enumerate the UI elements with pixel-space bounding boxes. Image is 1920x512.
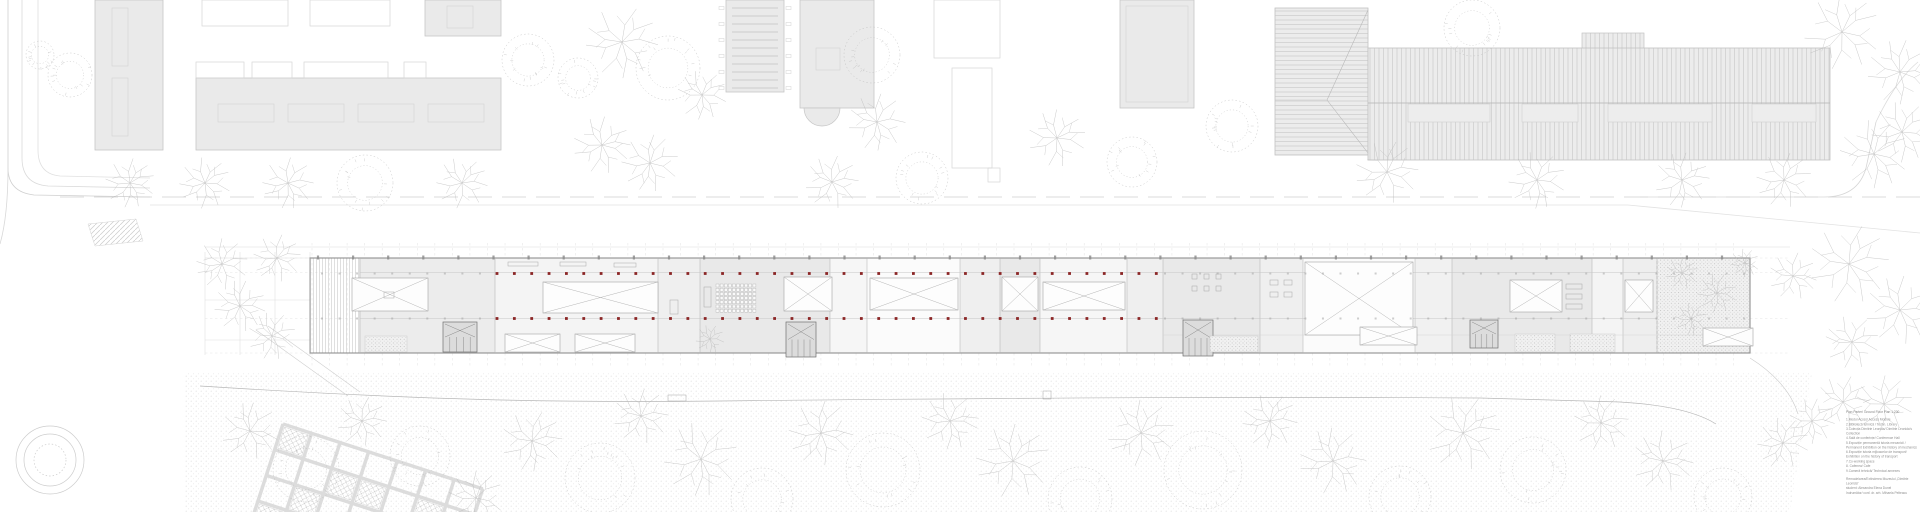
legend-item: 2.Bibliotecă tehnică / Techn. Library (1846, 422, 1919, 426)
legend-items: 1.Modul Acces/ Access Module2.Bibliotecă… (1846, 417, 1919, 473)
legend-item: 8. Cafenea/ Cafe (1846, 464, 1919, 468)
legend-item: 7.Co-working space (1846, 459, 1919, 463)
credit-line: Remodelarea/Extinderea Muzeului „Dimitri… (1846, 477, 1919, 486)
site-plan-drawing (0, 0, 1920, 512)
context-buildings-layer (95, 0, 1830, 182)
legend-item: 1.Modul Acces/ Access Module (1846, 417, 1919, 421)
fountain-circle (16, 426, 84, 494)
credit-line: student: Alexandra Elena Dunel (1846, 486, 1919, 490)
legend-item: 5.Expoziție permanentă istoria mecanicii… (1846, 441, 1919, 450)
legend-item: 4.Sală de conferințe/ Conference Hall (1846, 436, 1919, 440)
legend-item: 6.Expoziție istoria mijloacelor de trans… (1846, 450, 1919, 459)
legend-block: Plan Parter/ Ground Floor Plan 1:200 1.M… (1846, 410, 1920, 510)
legend-item: 3.Colecția Dimitrie Leonida/ Dimitrie Le… (1846, 427, 1919, 436)
legend-item: 9.Cameră tehnică/ Technical annexes (1846, 469, 1919, 473)
ground-texture-layer (185, 372, 1812, 512)
site-plan-sheet: Plan Parter/ Ground Floor Plan 1:200 1.M… (0, 0, 1920, 512)
legend-credits: Remodelarea/Extinderea Muzeului „Dimitri… (1846, 477, 1919, 495)
legend-title: Plan Parter/ Ground Floor Plan 1:200 (1846, 410, 1919, 414)
credit-line: îndrumător/ conf. dr. arh. Mihaela Pelte… (1846, 491, 1919, 495)
legend-inner: Plan Parter/ Ground Floor Plan 1:200 1.M… (1846, 410, 1919, 495)
